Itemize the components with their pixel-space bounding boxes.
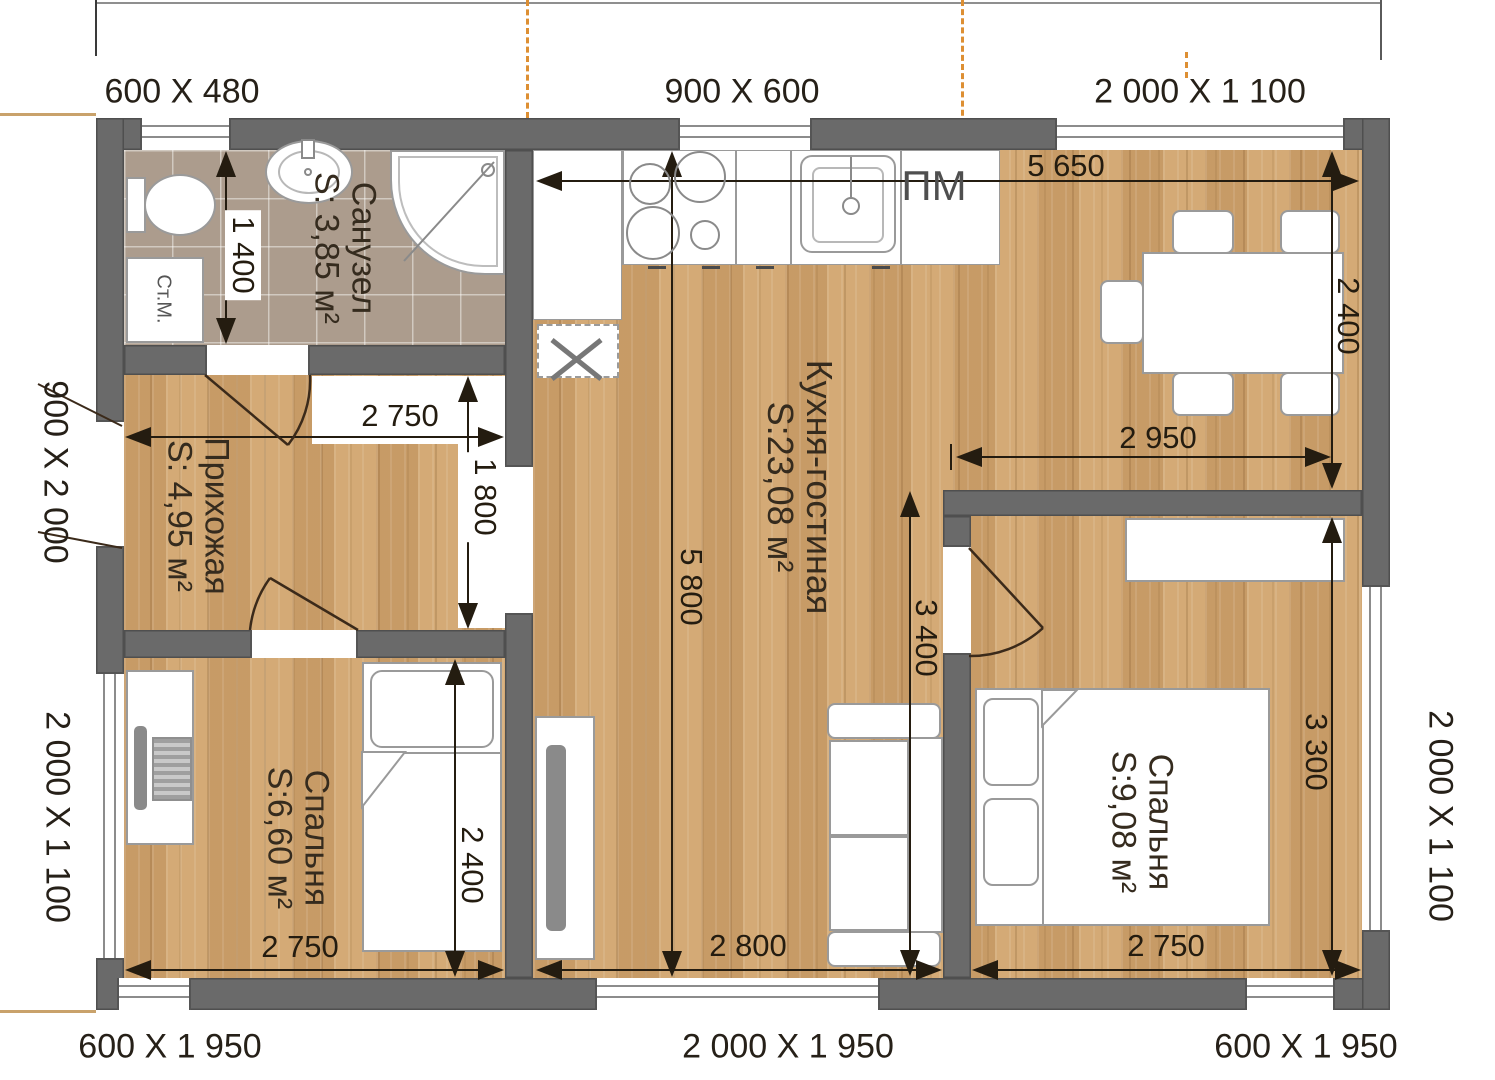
chair [1172,210,1234,254]
axis-line-orange-left [526,0,529,118]
computer-monitor [134,726,147,810]
cabinet-handle [872,266,890,269]
blanket-line [1042,690,1044,924]
kitchen-appliance-dashed [537,324,619,378]
dishwasher-label: ПМ [901,162,966,210]
dim-label: 2 750 [261,929,339,965]
chair [1172,372,1234,416]
washing-machine-label: Ст.М. [152,274,175,323]
sofa-back [908,737,943,933]
axis-tan-left-bottom [0,1010,96,1013]
dim-label: 3 400 [908,599,944,677]
sofa-seat [829,740,909,836]
pillow [983,698,1039,786]
counter-divider [735,150,737,265]
window-size-label: 2 000 X 1 950 [682,1028,894,1067]
window-size-label: 600 X 1 950 [78,1028,261,1067]
dim-label: 2 800 [709,928,787,964]
room-label-kitchen: Кухня-гостинаяS:23,08 м² [760,360,838,615]
dim-label: 2 750 [361,398,439,434]
axis-stub-right [1380,0,1382,60]
counter-divider [622,150,624,265]
dim-label: 3 300 [1298,713,1334,791]
dim-label: 5 650 [1027,148,1105,184]
counter-divider [790,150,792,265]
wall-bathroom-bottom [124,345,505,375]
window-size-label: 600 X 1 950 [1214,1028,1397,1067]
chair [1280,210,1340,254]
entry-door-opening [96,420,124,548]
axis-stub-left [95,0,97,56]
window-bottom-left [117,978,191,1010]
window-bathroom [140,118,231,150]
window-kitchen [678,118,812,150]
axis-tan-left-top [0,113,96,116]
dim-label: 1 400 [225,210,261,300]
window-size-label: 2 000 X 1 100 [1094,73,1306,112]
door-size-label: 900 X 2 000 [36,380,75,563]
floor-plan: 600 X 480 900 X 600 2 000 X 1 100 600 X … [0,0,1495,1080]
room-label-bedroom2: СпальняS:9,08 м² [1105,751,1178,893]
sofa-seat [829,836,909,931]
cabinet-handle [756,266,774,269]
dim-label: 2 400 [454,826,490,904]
window-bottom-center [595,978,880,1010]
dim-label: 5 800 [673,548,709,626]
toilet-bowl [144,174,216,236]
room-label-bathroom: СанузелS: 3,85 м² [308,172,381,324]
dim-label: 2 950 [1119,420,1197,456]
frame-top-line [96,2,1382,4]
kitchen-sink-inner [812,167,884,243]
dining-table [1142,252,1344,374]
chair [1280,372,1340,416]
room-label-bedroom1: СпальняS:6,60 м² [261,767,334,909]
cabinet-handle [648,266,666,269]
dim-label: 2 400 [1330,277,1366,355]
cabinet-handle [702,266,720,269]
window-size-label: 2 000 X 1 100 [38,711,77,923]
dim-label: 2 750 [1127,928,1205,964]
window-bedroom1 [96,672,124,960]
window-size-label: 900 X 600 [664,73,819,112]
kitchen-passage-opening [505,465,533,615]
computer-keyboard [152,737,192,801]
blanket-line [362,752,502,754]
chair [1100,280,1144,344]
sofa-armrest [827,931,941,967]
window-bedroom2 [1362,585,1390,932]
window-size-label: 600 X 480 [104,73,259,112]
wardrobe [1125,518,1345,582]
toilet-tank [126,177,146,233]
bedroom1-door-opening [250,630,358,658]
bedroom2-door-opening [943,545,971,655]
kitchen-counter-left [533,150,622,320]
sofa-armrest [827,703,941,739]
window-size-label: 2 000 X 1 100 [1421,710,1460,922]
window-bottom-right [1245,978,1335,1010]
room-label-hallway: ПрихожаяS: 4,95 м² [161,437,234,595]
pillow [983,798,1039,886]
window-dining [1055,118,1345,150]
pillow [370,670,494,748]
tv [546,745,566,931]
dim-label: 1 800 [467,452,503,542]
bathroom-door-opening [205,345,310,375]
wall-bedroom2-top [943,490,1362,516]
